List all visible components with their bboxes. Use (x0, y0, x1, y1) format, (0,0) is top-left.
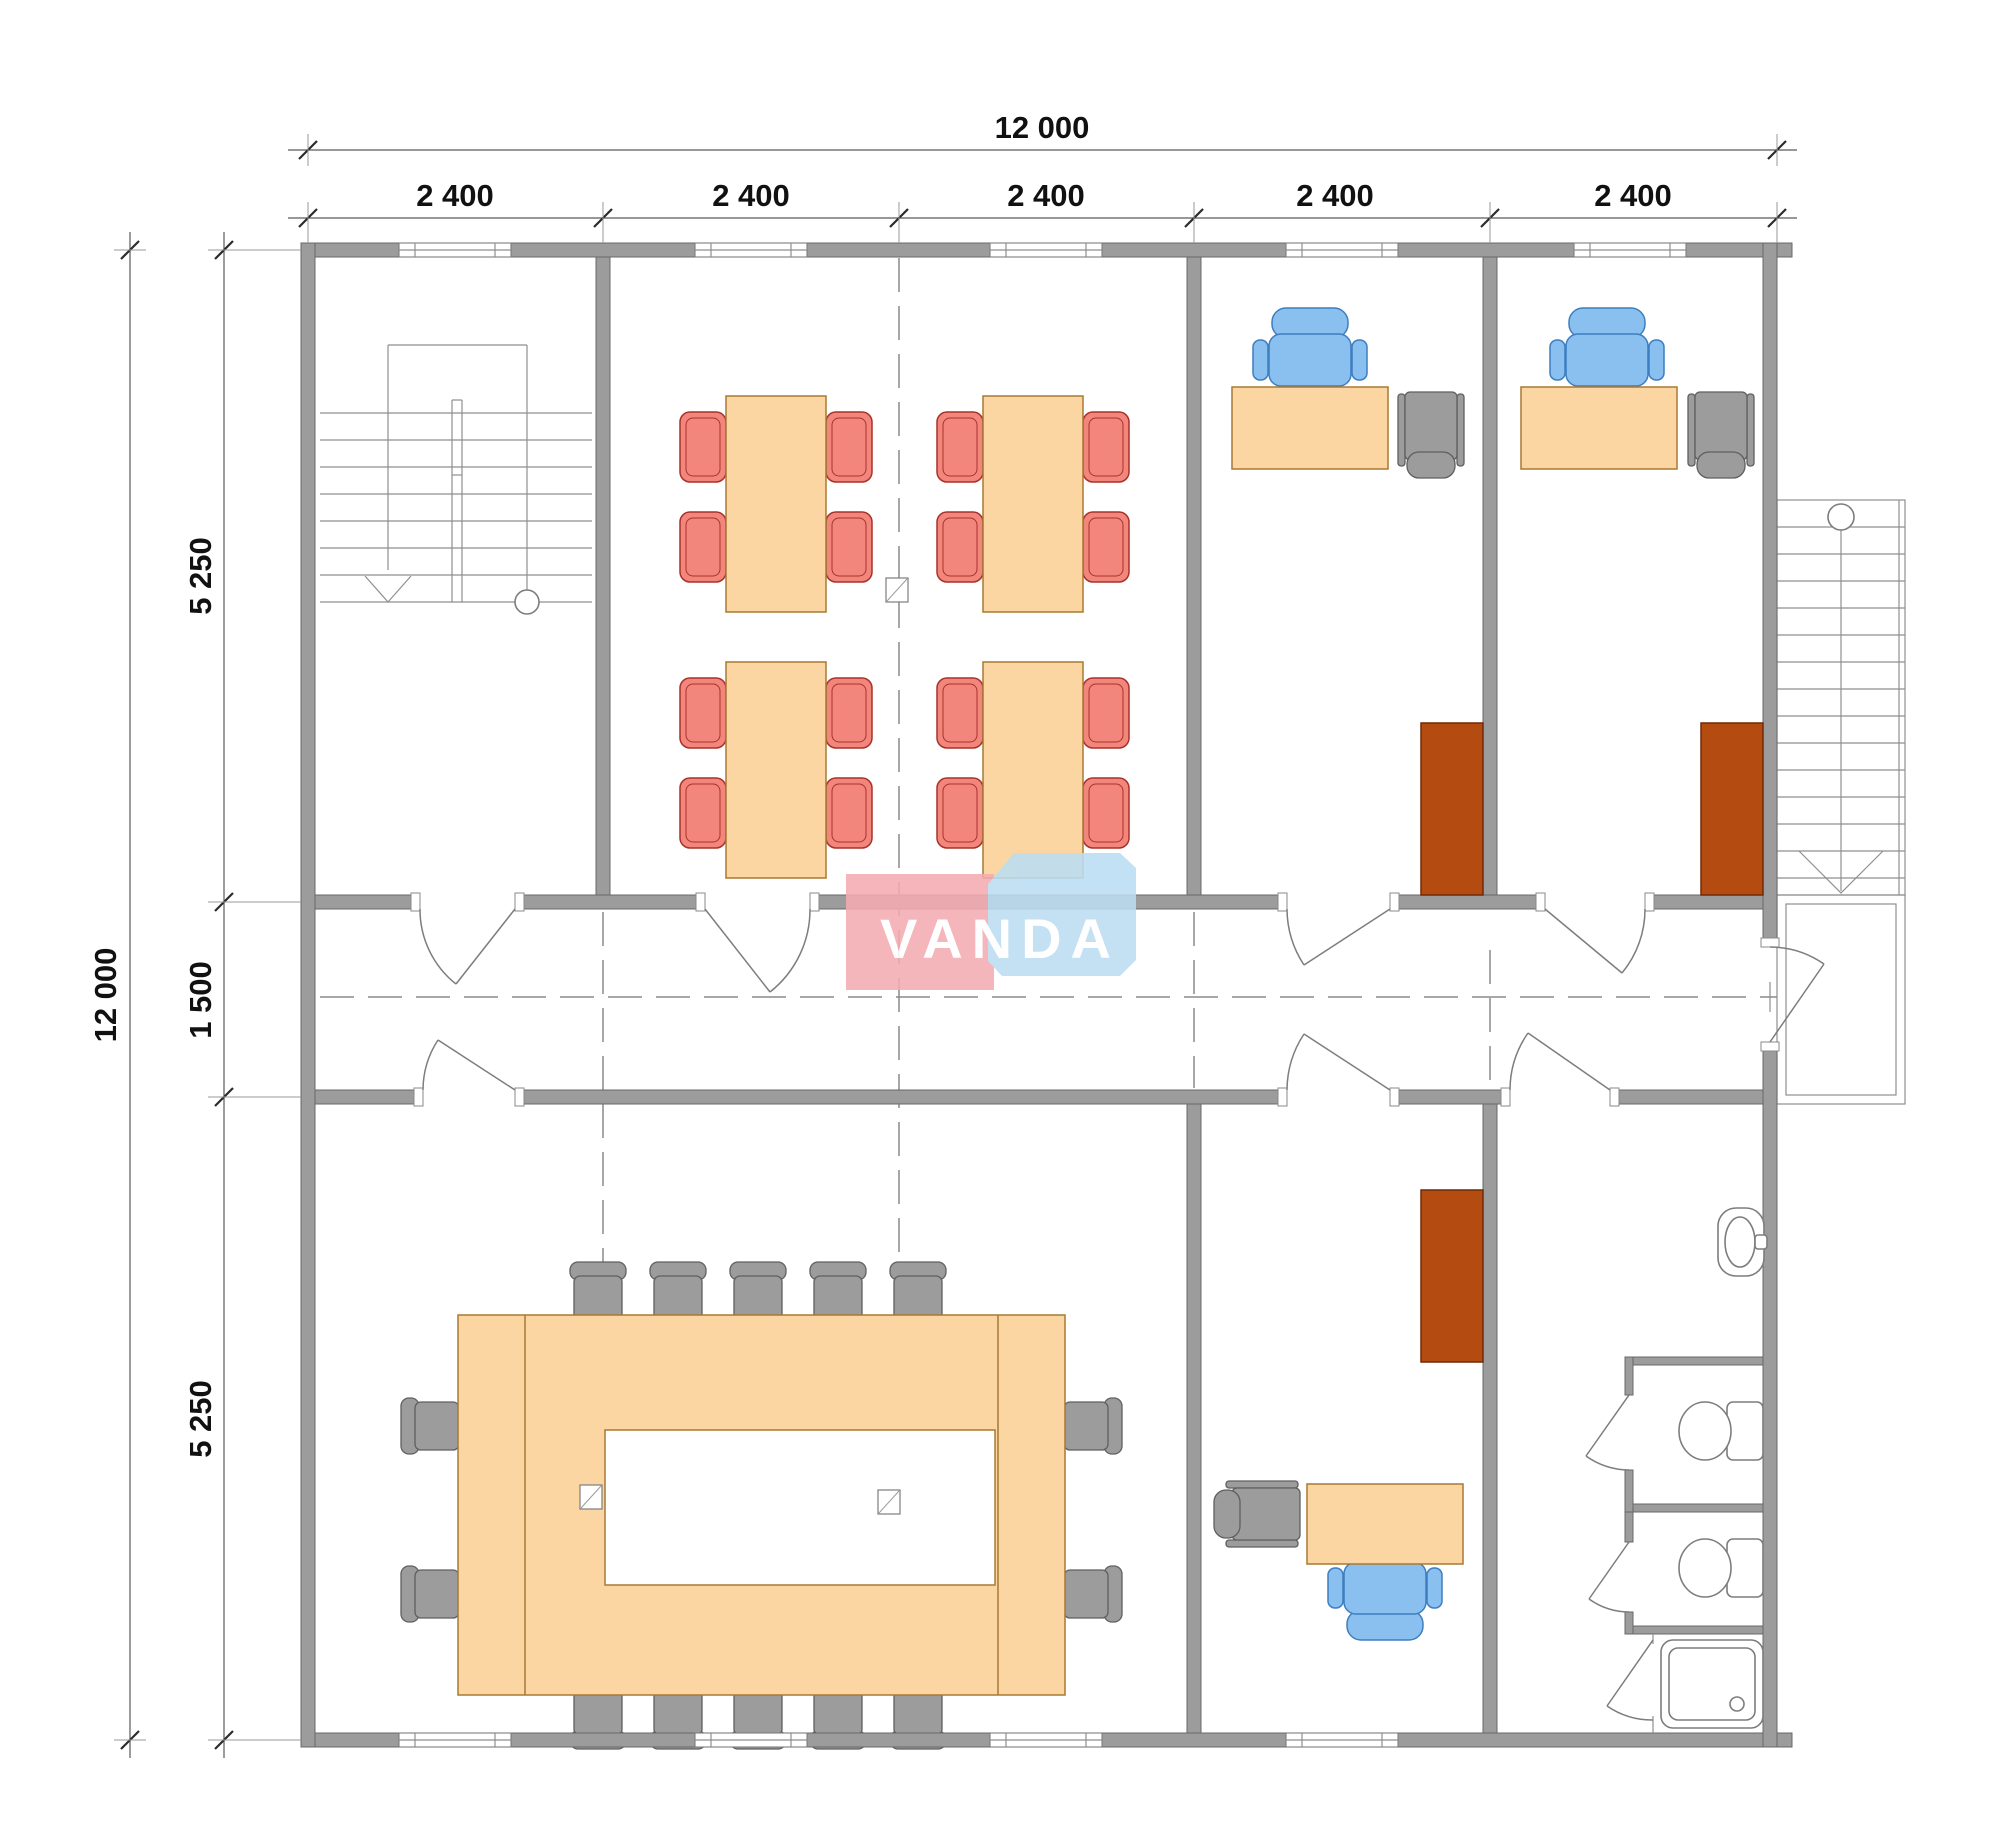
door-office-bottom (1287, 1034, 1390, 1090)
wall-corridor-top (315, 895, 420, 909)
desk (1232, 387, 1388, 469)
dimension-left-secondary: 5 250 1 500 5 250 (183, 232, 301, 1758)
stall-front-stub (1625, 1357, 1633, 1395)
stall-front-stub (1625, 1612, 1633, 1634)
dim-label-bay: 2 400 (1594, 178, 1672, 213)
dim-label-bay: 2 400 (416, 178, 494, 213)
column-marker (878, 1490, 900, 1514)
door-exit-to-stair (1770, 947, 1824, 1042)
dim-label-bay: 2 400 (1007, 178, 1085, 213)
door-canteen (705, 909, 810, 992)
wall-corridor-top (1645, 895, 1763, 909)
dim-label-bay: 2 400 (712, 178, 790, 213)
wall-corridor-top (515, 895, 705, 909)
floor-plan-canvas: VANDA 12 000 2 400 2 400 2 400 2 400 2 4… (0, 0, 2000, 1848)
canteen-furniture (680, 396, 1129, 878)
window (695, 243, 807, 257)
wall-corridor-bottom (315, 1090, 423, 1104)
door-shower (1607, 1634, 1653, 1733)
sink (1718, 1208, 1767, 1276)
door-office-top-2 (1545, 909, 1645, 973)
toilet (1679, 1539, 1763, 1597)
task-chair-blue (1253, 308, 1367, 386)
cabinet-office-top-1 (1421, 723, 1483, 895)
cabinets (1421, 723, 1763, 1362)
dim-label-corridor-width: 1 500 (183, 961, 218, 1039)
toilet (1679, 1402, 1763, 1460)
dim-label-bay: 2 400 (1296, 178, 1374, 213)
window (990, 1733, 1102, 1747)
door-stall-1 (1586, 1395, 1629, 1470)
external-staircase (1777, 500, 1905, 1104)
window (1286, 243, 1398, 257)
window (1574, 243, 1686, 257)
visitor-chair (1214, 1481, 1300, 1547)
logo-text: VANDA (880, 907, 1120, 970)
conference-room-furniture (401, 1262, 1122, 1749)
stall-partition (1625, 1626, 1763, 1634)
stair-down-arrow (365, 576, 411, 602)
dimension-top-secondary: 2 400 2 400 2 400 2 400 2 400 (288, 178, 1797, 243)
stair-landing (1777, 895, 1905, 1104)
conference-table-opening (605, 1430, 995, 1585)
stair-treads (320, 413, 592, 602)
stair-rail (452, 400, 462, 602)
desk (1307, 1484, 1463, 1564)
door-conference (423, 1040, 515, 1090)
dim-label-room-depth: 5 250 (183, 537, 218, 615)
stair-start-circle (515, 590, 539, 614)
stair-start-circle (1828, 504, 1854, 530)
wall-stair-canteen (596, 257, 610, 895)
door-washroom (1510, 1033, 1610, 1090)
dimension-top-primary: 12 000 (288, 110, 1797, 166)
stall-front-stub (1625, 1512, 1633, 1542)
window (990, 243, 1102, 257)
wall-exterior-right-lower (1763, 1042, 1777, 1747)
dim-label-overall-width: 12 000 (995, 110, 1090, 145)
wall-corridor-bottom (515, 1090, 1287, 1104)
task-chair-blue (1328, 1562, 1442, 1640)
cabinet-office-top-2 (1701, 723, 1763, 895)
column-marker (580, 1485, 602, 1509)
visitor-chair (1688, 392, 1754, 478)
window (399, 1733, 511, 1747)
desk (1521, 387, 1677, 469)
door-stall-2 (1589, 1542, 1629, 1612)
window (695, 1733, 807, 1747)
stall-partition (1625, 1504, 1763, 1512)
wall-office1-office2 (1483, 257, 1497, 895)
wall-corridor-bottom (1390, 1090, 1510, 1104)
dim-label-room-depth: 5 250 (183, 1380, 218, 1458)
office-top-2-furniture (1521, 308, 1754, 478)
wall-exterior-right-upper (1763, 243, 1777, 947)
column-marker (886, 578, 908, 602)
dim-label-overall-height: 12 000 (88, 948, 123, 1043)
washroom-fixtures (1661, 1208, 1767, 1728)
wall-corridor-bottom (1610, 1090, 1763, 1104)
door-stairwell (420, 909, 515, 984)
wall-corridor-top (1390, 895, 1545, 909)
wall-canteen-office1 (1187, 257, 1201, 895)
stall-front-stub (1625, 1470, 1633, 1512)
office-top-1-furniture (1232, 308, 1464, 478)
internal-staircase (320, 345, 592, 614)
cabinet-office-bottom (1421, 1190, 1483, 1362)
visitor-chair (1398, 392, 1464, 478)
office-bottom-furniture (1214, 1481, 1463, 1640)
stall-partition (1625, 1357, 1763, 1365)
window (1286, 1733, 1398, 1747)
door-office-top-1 (1287, 909, 1390, 965)
wall-office3-washroom (1483, 1104, 1497, 1733)
shower-tray (1661, 1640, 1763, 1728)
wall-conference-office3 (1187, 1104, 1201, 1733)
floor-plan-page: VANDA 12 000 2 400 2 400 2 400 2 400 2 4… (0, 0, 2000, 1848)
task-chair-blue (1550, 308, 1664, 386)
dimension-left-primary: 12 000 (88, 232, 146, 1758)
window (399, 243, 511, 257)
wall-exterior-left (301, 243, 315, 1747)
canteen-tables (726, 396, 1083, 878)
